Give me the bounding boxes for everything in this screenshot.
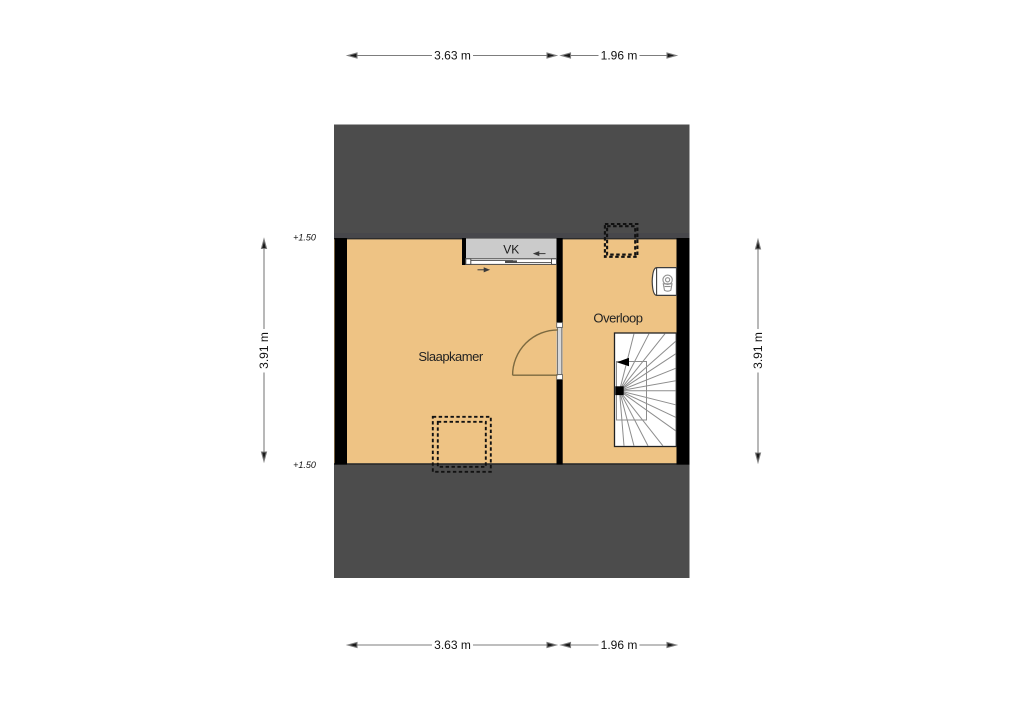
svg-text:+1.50: +1.50 — [293, 233, 316, 243]
svg-text:Overloop: Overloop — [593, 311, 642, 326]
svg-text:1.96 m: 1.96 m — [601, 638, 638, 652]
svg-text:VK: VK — [503, 243, 519, 257]
svg-text:3.91 m: 3.91 m — [257, 332, 271, 369]
svg-text:3.63 m: 3.63 m — [434, 638, 471, 652]
svg-text:+1.50: +1.50 — [293, 460, 316, 470]
svg-text:3.91 m: 3.91 m — [751, 332, 765, 369]
svg-text:1.96 m: 1.96 m — [601, 49, 638, 63]
svg-text:Slaapkamer: Slaapkamer — [418, 349, 484, 364]
svg-text:3.63 m: 3.63 m — [434, 49, 471, 63]
